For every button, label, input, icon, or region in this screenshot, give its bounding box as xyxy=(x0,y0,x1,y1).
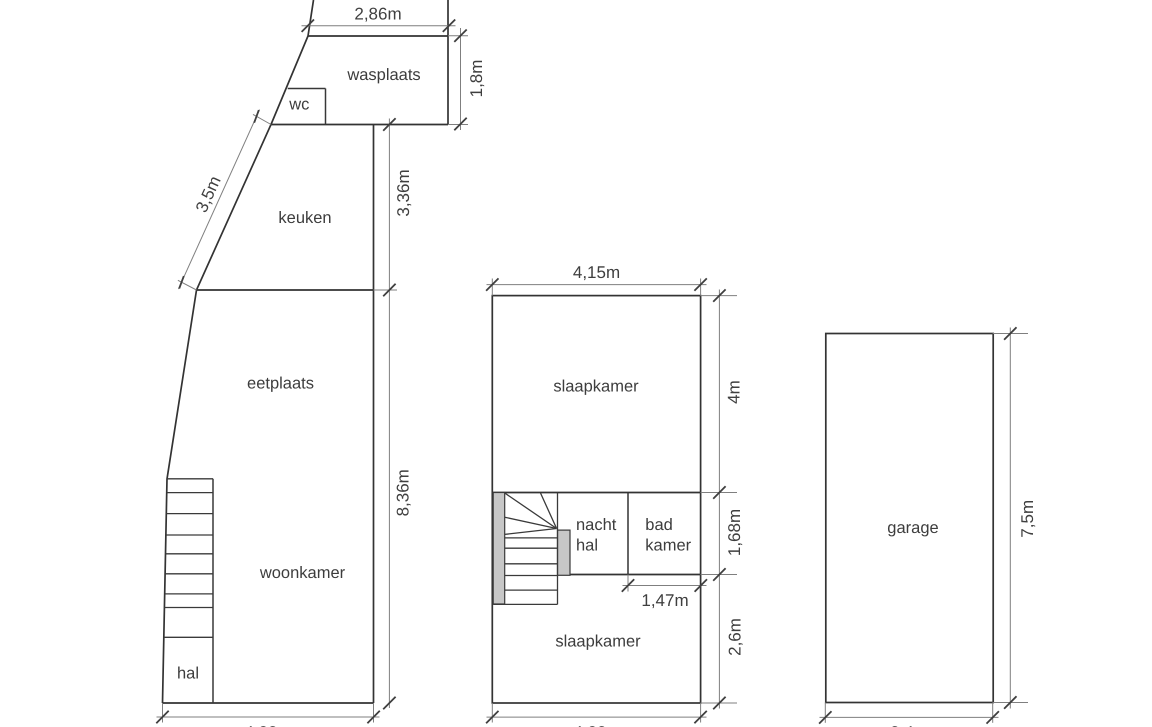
svg-text:nacht: nacht xyxy=(576,516,617,534)
svg-text:kamer: kamer xyxy=(645,536,691,554)
svg-text:wasplaats: wasplaats xyxy=(346,66,420,84)
svg-text:1,8m: 1,8m xyxy=(467,60,486,98)
svg-text:8,36m: 8,36m xyxy=(394,469,413,516)
svg-text:7,5m: 7,5m xyxy=(1018,500,1037,538)
svg-text:3,36m: 3,36m xyxy=(394,169,413,216)
svg-text:woonkamer: woonkamer xyxy=(259,564,346,582)
svg-text:2,6m: 2,6m xyxy=(726,618,745,656)
svg-text:1,47m: 1,47m xyxy=(641,591,688,610)
svg-text:keuken: keuken xyxy=(278,209,331,227)
svg-text:3,4m: 3,4m xyxy=(890,723,928,727)
svg-text:eetplaats: eetplaats xyxy=(247,375,314,393)
svg-text:wc: wc xyxy=(288,96,309,114)
svg-text:4,15m: 4,15m xyxy=(573,263,620,282)
svg-text:4m: 4m xyxy=(725,380,744,404)
svg-text:2,86m: 2,86m xyxy=(354,5,401,24)
svg-text:garage: garage xyxy=(887,519,938,537)
svg-text:slaapkamer: slaapkamer xyxy=(555,633,641,651)
svg-text:4,23m: 4,23m xyxy=(573,723,620,727)
svg-text:hal: hal xyxy=(576,536,598,554)
svg-text:hal: hal xyxy=(177,665,199,683)
svg-text:1,68m: 1,68m xyxy=(725,509,744,556)
svg-text:bad: bad xyxy=(645,516,673,534)
svg-text:slaapkamer: slaapkamer xyxy=(553,378,639,396)
svg-text:4,28m: 4,28m xyxy=(244,723,291,727)
